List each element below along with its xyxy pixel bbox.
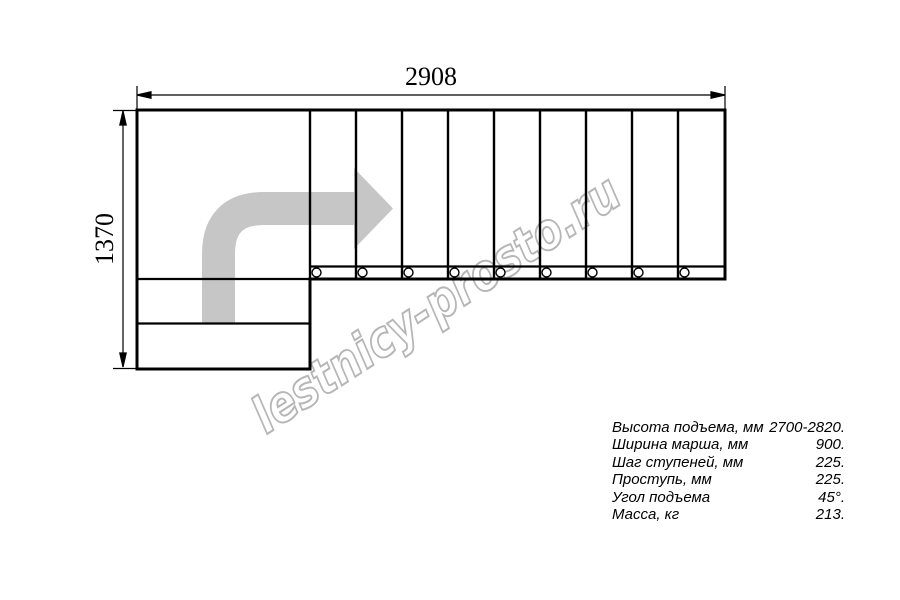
spec-value: 225. [816,454,845,471]
spec-value: 2700-2820. [769,419,845,436]
arrow-head [354,168,393,249]
spec-row-angle: Угол подъема 45°. [612,489,845,506]
spec-label: Проступь, мм [612,471,712,488]
spec-label: Высота подъема, мм [612,419,764,436]
spec-row-flight-width: Ширина марша, мм 900. [612,436,845,453]
dimension-width-value: 2908 [371,64,491,90]
spec-value: 213. [816,506,845,523]
spec-label: Шаг ступеней, мм [612,454,743,471]
dim-arrow-down [120,353,126,367]
spec-row-mass: Масса, кг 213. [612,506,845,523]
spec-label: Угол подъема [612,489,710,506]
dim-arrow-right [711,92,725,98]
dim-arrow-up [120,111,126,125]
direction-arrow [219,168,394,323]
spec-label: Ширина марша, мм [612,436,748,453]
dimension-depth-value: 1370 [92,179,118,299]
spec-value: 225. [816,471,845,488]
spec-label: Масса, кг [612,506,679,523]
spec-row-height: Высота подъема, мм 2700-2820. [612,419,845,436]
spec-value: 900. [816,436,845,453]
spec-row-step-pitch: Шаг ступеней, мм 225. [612,454,845,471]
spec-row-tread: Проступь, мм 225. [612,471,845,488]
dim-arrow-left [137,92,151,98]
spec-value: 45°. [818,489,845,506]
staircase-drawing-page: lestnicy-prosto.ru [0,0,900,600]
tread-lines [310,110,678,369]
specs-table: Высота подъема, мм 2700-2820. Ширина мар… [612,419,845,523]
